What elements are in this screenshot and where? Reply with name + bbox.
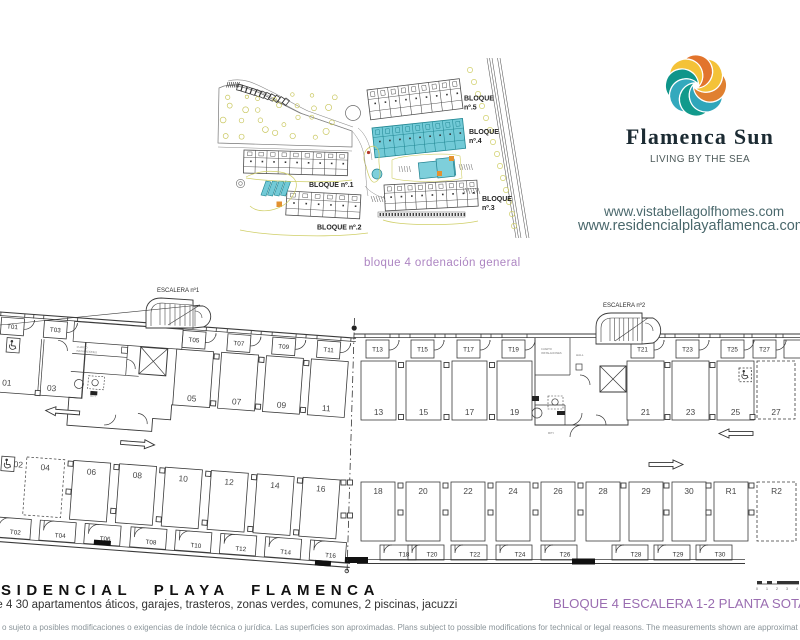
svg-text:29: 29 [641,486,651,496]
svg-text:T17: T17 [463,346,474,353]
svg-text:T28: T28 [631,552,642,559]
svg-text:17: 17 [465,407,475,417]
svg-text:T11: T11 [323,347,334,355]
svg-text:16: 16 [316,483,326,494]
svg-text:18: 18 [373,486,383,496]
svg-text:T02: T02 [10,529,22,537]
svg-text:ESCALERA nº1: ESCALERA nº1 [157,287,200,294]
svg-text:T05: T05 [188,337,200,345]
svg-text:20: 20 [418,486,428,496]
svg-text:19: 19 [510,407,520,417]
svg-text:01: 01 [2,377,12,388]
svg-text:CUARTO: CUARTO [77,345,88,350]
svg-text:T14: T14 [280,549,292,557]
svg-text:14: 14 [270,480,280,491]
svg-text:3: 3 [786,587,788,591]
svg-text:06: 06 [87,466,97,477]
svg-text:T03: T03 [50,327,62,335]
svg-text:02: 02 [13,459,23,470]
svg-text:08: 08 [132,470,142,481]
svg-text:BLOQUE nº.2: BLOQUE nº.2 [317,225,362,232]
svg-text:CUARTO: CUARTO [541,347,552,351]
svg-text:T13: T13 [372,346,383,353]
svg-text:23: 23 [686,407,696,417]
svg-text:09: 09 [276,400,286,411]
svg-text:T12: T12 [235,545,247,553]
svg-text:T20: T20 [427,552,438,559]
svg-text:nº.5: nº.5 [464,105,477,112]
svg-text:BLOQUE: BLOQUE [469,129,499,136]
svg-text:BLOQUE: BLOQUE [482,196,512,203]
svg-text:T22: T22 [470,552,481,559]
svg-text:21: 21 [641,407,651,417]
svg-text:10: 10 [178,473,188,484]
svg-text:BLOQUE: BLOQUE [464,96,494,103]
svg-text:2: 2 [776,587,778,591]
svg-text:BLOQUE nº.1: BLOQUE nº.1 [309,182,354,189]
svg-text:T29: T29 [673,552,684,559]
svg-text:RITI: RITI [90,394,96,398]
svg-text:11: 11 [322,403,332,414]
svg-text:T23: T23 [682,346,693,353]
svg-text:T08: T08 [145,539,157,547]
svg-text:T16: T16 [325,552,337,560]
svg-text:22: 22 [463,486,473,496]
svg-text:25: 25 [731,407,741,417]
svg-text:T15: T15 [417,346,428,353]
svg-text:0: 0 [756,587,758,591]
svg-text:T19: T19 [508,346,519,353]
svg-text:1: 1 [766,587,768,591]
svg-text:T07: T07 [233,340,245,348]
svg-text:RITI: RITI [548,431,554,435]
svg-text:05: 05 [187,393,197,404]
svg-text:INSTALACIONES: INSTALACIONES [76,349,97,355]
svg-text:T10: T10 [190,542,202,550]
svg-text:T04: T04 [55,532,67,540]
svg-text:30: 30 [684,486,694,496]
svg-text:T25: T25 [727,346,738,353]
svg-text:4: 4 [796,587,798,591]
svg-text:T26: T26 [560,552,571,559]
svg-text:26: 26 [553,486,563,496]
svg-text:28: 28 [598,486,608,496]
svg-text:T27: T27 [759,346,770,353]
svg-text:nº.3: nº.3 [482,205,495,212]
svg-text:T30: T30 [715,552,726,559]
svg-text:INSTALACIONES: INSTALACIONES [541,351,562,355]
svg-text:R1: R1 [726,486,737,496]
svg-text:ESCALERA nº2: ESCALERA nº2 [603,302,646,309]
svg-text:T09: T09 [278,343,290,351]
svg-text:04: 04 [40,462,50,473]
svg-text:24: 24 [508,486,518,496]
svg-text:07: 07 [232,396,242,407]
svg-text:15: 15 [419,407,429,417]
svg-text:13: 13 [374,407,384,417]
svg-text:T24: T24 [515,552,526,559]
svg-text:T01: T01 [7,323,19,331]
svg-text:T21: T21 [637,346,648,353]
svg-text:nº.4: nº.4 [469,138,482,145]
svg-text:HALL: HALL [576,353,584,357]
svg-text:03: 03 [47,383,57,394]
svg-text:R2: R2 [771,486,782,496]
svg-text:27: 27 [771,407,781,417]
svg-text:12: 12 [224,477,234,488]
